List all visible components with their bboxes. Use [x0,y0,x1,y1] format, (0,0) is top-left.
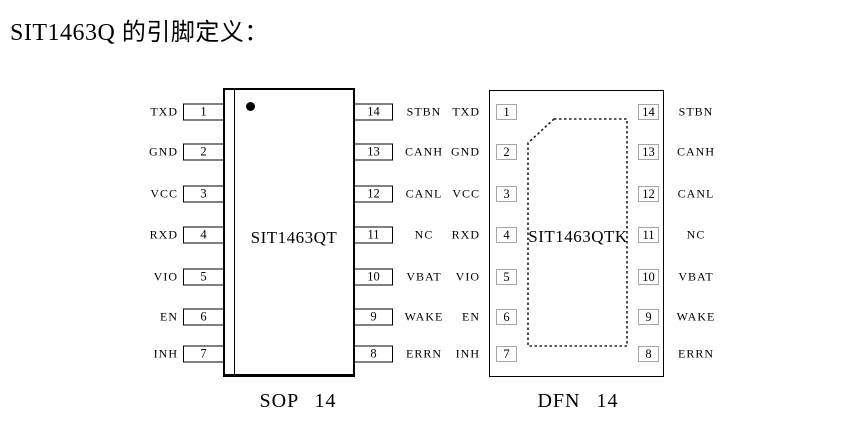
pin-number-box: 5 [496,269,517,285]
pin-name-label: STBN [668,105,724,120]
sop-package-caption: SOP 14 [248,390,348,413]
pin-number-box: 1 [496,104,517,120]
pin-name-label: VIO [426,270,480,285]
pin-number-box: 5 [183,269,224,286]
pin-name-label: VIO [126,270,178,285]
pin-number-box: 6 [496,309,517,325]
pin-number-box: 12 [638,186,659,202]
dfn-package-caption: DFN 14 [528,390,628,413]
page-title: SIT1463Q 的引脚定义： [10,12,269,47]
pin-number-box: 1 [183,104,224,121]
pin-number-box: 9 [354,309,393,326]
pin-number-box: 13 [354,144,393,161]
pin-number-box: 6 [183,309,224,326]
pin-name-label: INH [426,347,480,362]
pin-name-label: CANH [668,145,724,160]
pin-number-box: 8 [354,346,393,363]
pin-number-box: 8 [638,346,659,362]
pin-number-box: 10 [354,269,393,286]
pin-name-label: RXD [126,228,178,243]
pin-number-box: 14 [354,104,393,121]
pin-name-label: GND [426,145,480,160]
pin-number-box: 13 [638,144,659,160]
pin-number-box: 12 [354,186,393,203]
pin-name-label: EN [126,310,178,325]
pin-definition-figure: SIT1463Q 的引脚定义： SIT1463QT TXD 1 14 STBN … [0,0,866,445]
sop-chip-name: SIT1463QT [235,228,353,248]
pin-number-box: 3 [183,186,224,203]
pin-name-label: VBAT [668,270,724,285]
pin-name-label: VCC [126,187,178,202]
pin-number-box: 4 [183,227,224,244]
pin-number-box: 11 [354,227,393,244]
pin-name-label: VCC [426,187,480,202]
pin-number-box: 7 [183,346,224,363]
pin-name-label: INH [126,347,178,362]
pin-name-label: EN [426,310,480,325]
pin-number-box: 3 [496,186,517,202]
pin-name-label: WAKE [668,310,724,325]
pin-number-box: 2 [183,144,224,161]
pin-number-box: 2 [496,144,517,160]
pin-number-box: 10 [638,269,659,285]
pin-number-box: 4 [496,227,517,243]
pin-number-box: 14 [638,104,659,120]
dfn-chip-name: SIT1463QTK [518,227,638,247]
pin-name-label: TXD [126,105,178,120]
pin-name-label: TXD [426,105,480,120]
sop-package-body: SIT1463QT [223,88,355,377]
pin-number-box: 9 [638,309,659,325]
pin-name-label: NC [668,228,724,243]
pin1-marker-dot [246,102,255,111]
pin-number-box: 11 [638,227,659,243]
pin-name-label: CANL [668,187,724,202]
pin-name-label: GND [126,145,178,160]
pin-name-label: RXD [426,228,480,243]
pin-number-box: 7 [496,346,517,362]
pin-name-label: ERRN [668,347,724,362]
